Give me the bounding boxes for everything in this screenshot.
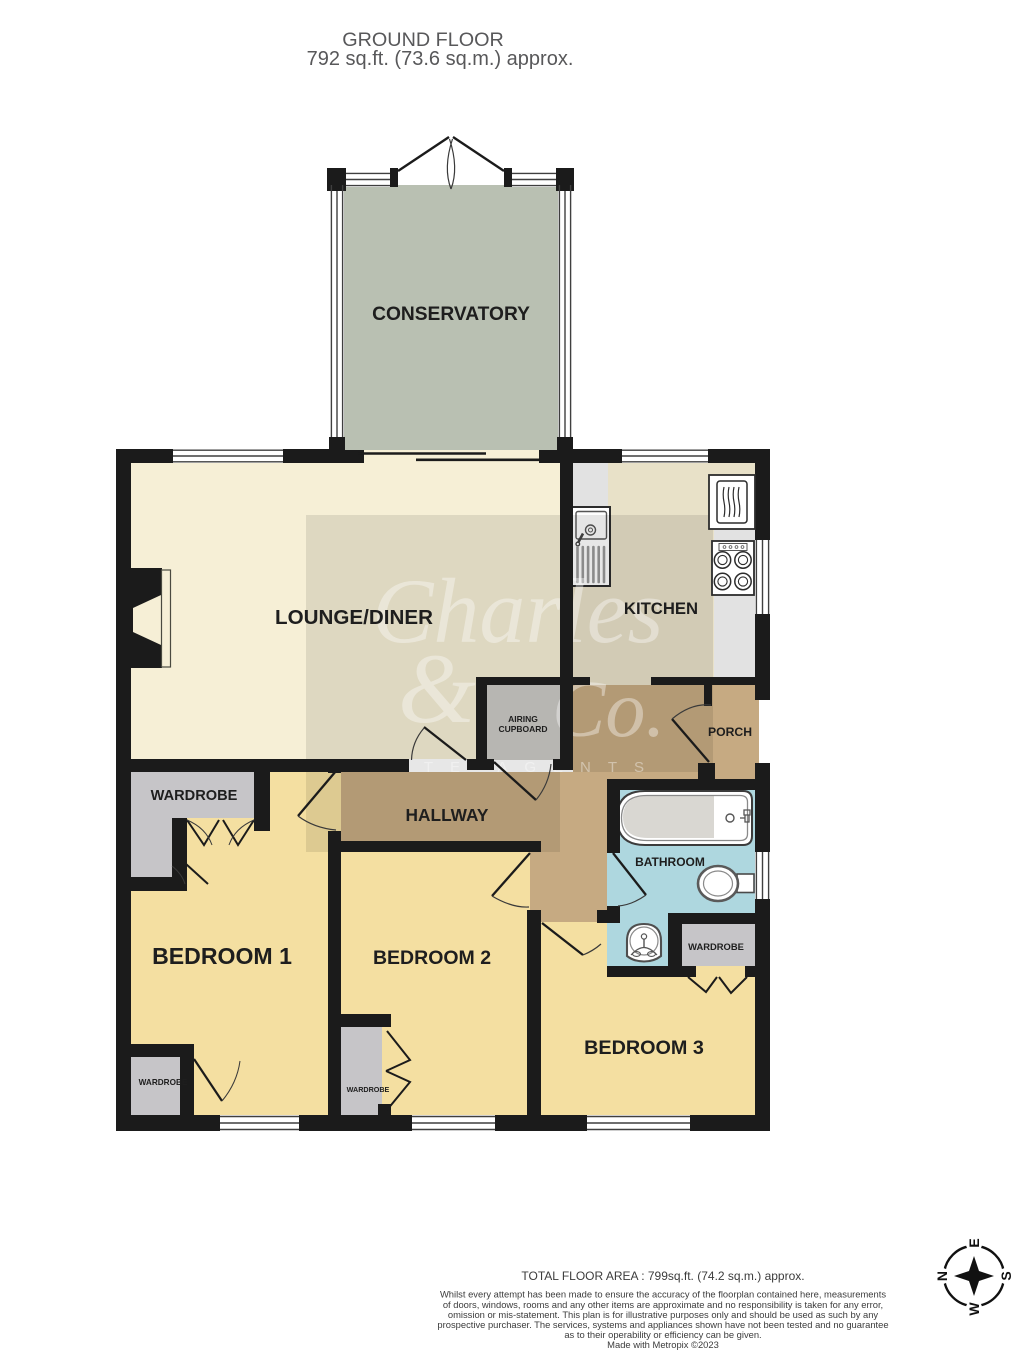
svg-text:WARDROBE: WARDROBE [688, 941, 744, 952]
svg-text:BEDROOM 1: BEDROOM 1 [152, 943, 292, 969]
svg-text:W: W [966, 1302, 982, 1316]
svg-text:CUPBOARD: CUPBOARD [498, 724, 547, 734]
svg-text:KITCHEN: KITCHEN [624, 599, 698, 618]
svg-text:E: E [966, 1238, 982, 1247]
svg-text:CONSERVATORY: CONSERVATORY [372, 304, 530, 325]
svg-text:Made with Metropix ©2023: Made with Metropix ©2023 [607, 1339, 719, 1350]
svg-text:TOTAL FLOOR AREA : 799sq.ft. (: TOTAL FLOOR AREA : 799sq.ft. (74.2 sq.m.… [521, 1269, 804, 1283]
svg-text:HALLWAY: HALLWAY [406, 805, 489, 825]
svg-text:WARDROBE: WARDROBE [347, 1085, 390, 1094]
svg-text:792 sq.ft. (73.6 sq.m.) approx: 792 sq.ft. (73.6 sq.m.) approx. [307, 48, 574, 70]
svg-text:WARDROBE: WARDROBE [151, 788, 238, 804]
svg-text:BEDROOM 2: BEDROOM 2 [373, 947, 491, 969]
svg-text:BEDROOM 3: BEDROOM 3 [584, 1037, 704, 1059]
svg-text:BATHROOM: BATHROOM [635, 855, 705, 869]
svg-text:S: S [998, 1271, 1014, 1280]
svg-text:PORCH: PORCH [708, 725, 752, 739]
svg-text:AIRING: AIRING [508, 714, 538, 724]
svg-text:WARDROBE: WARDROBE [139, 1078, 188, 1087]
svg-text:LOUNGE/DINER: LOUNGE/DINER [275, 606, 433, 629]
svg-text:N: N [934, 1271, 950, 1281]
svg-text:&: & [398, 633, 476, 744]
